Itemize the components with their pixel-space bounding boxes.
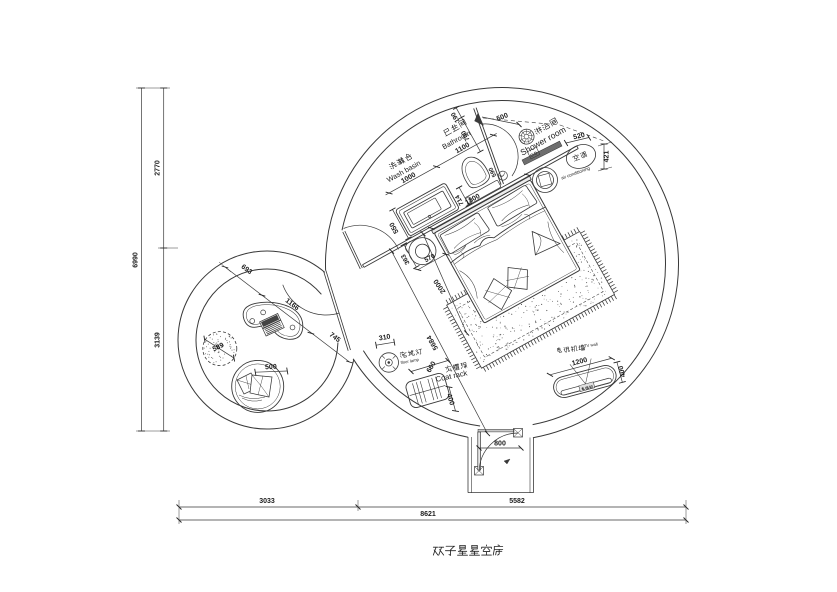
- svg-text:3139: 3139: [155, 332, 162, 348]
- svg-text:800: 800: [494, 441, 506, 448]
- svg-text:500: 500: [265, 364, 277, 372]
- svg-text:3033: 3033: [259, 498, 275, 505]
- svg-text:2770: 2770: [155, 160, 162, 176]
- svg-text:8621: 8621: [420, 511, 436, 518]
- svg-text:5582: 5582: [509, 498, 525, 505]
- svg-text:421: 421: [604, 151, 611, 163]
- svg-text:6990: 6990: [133, 252, 140, 268]
